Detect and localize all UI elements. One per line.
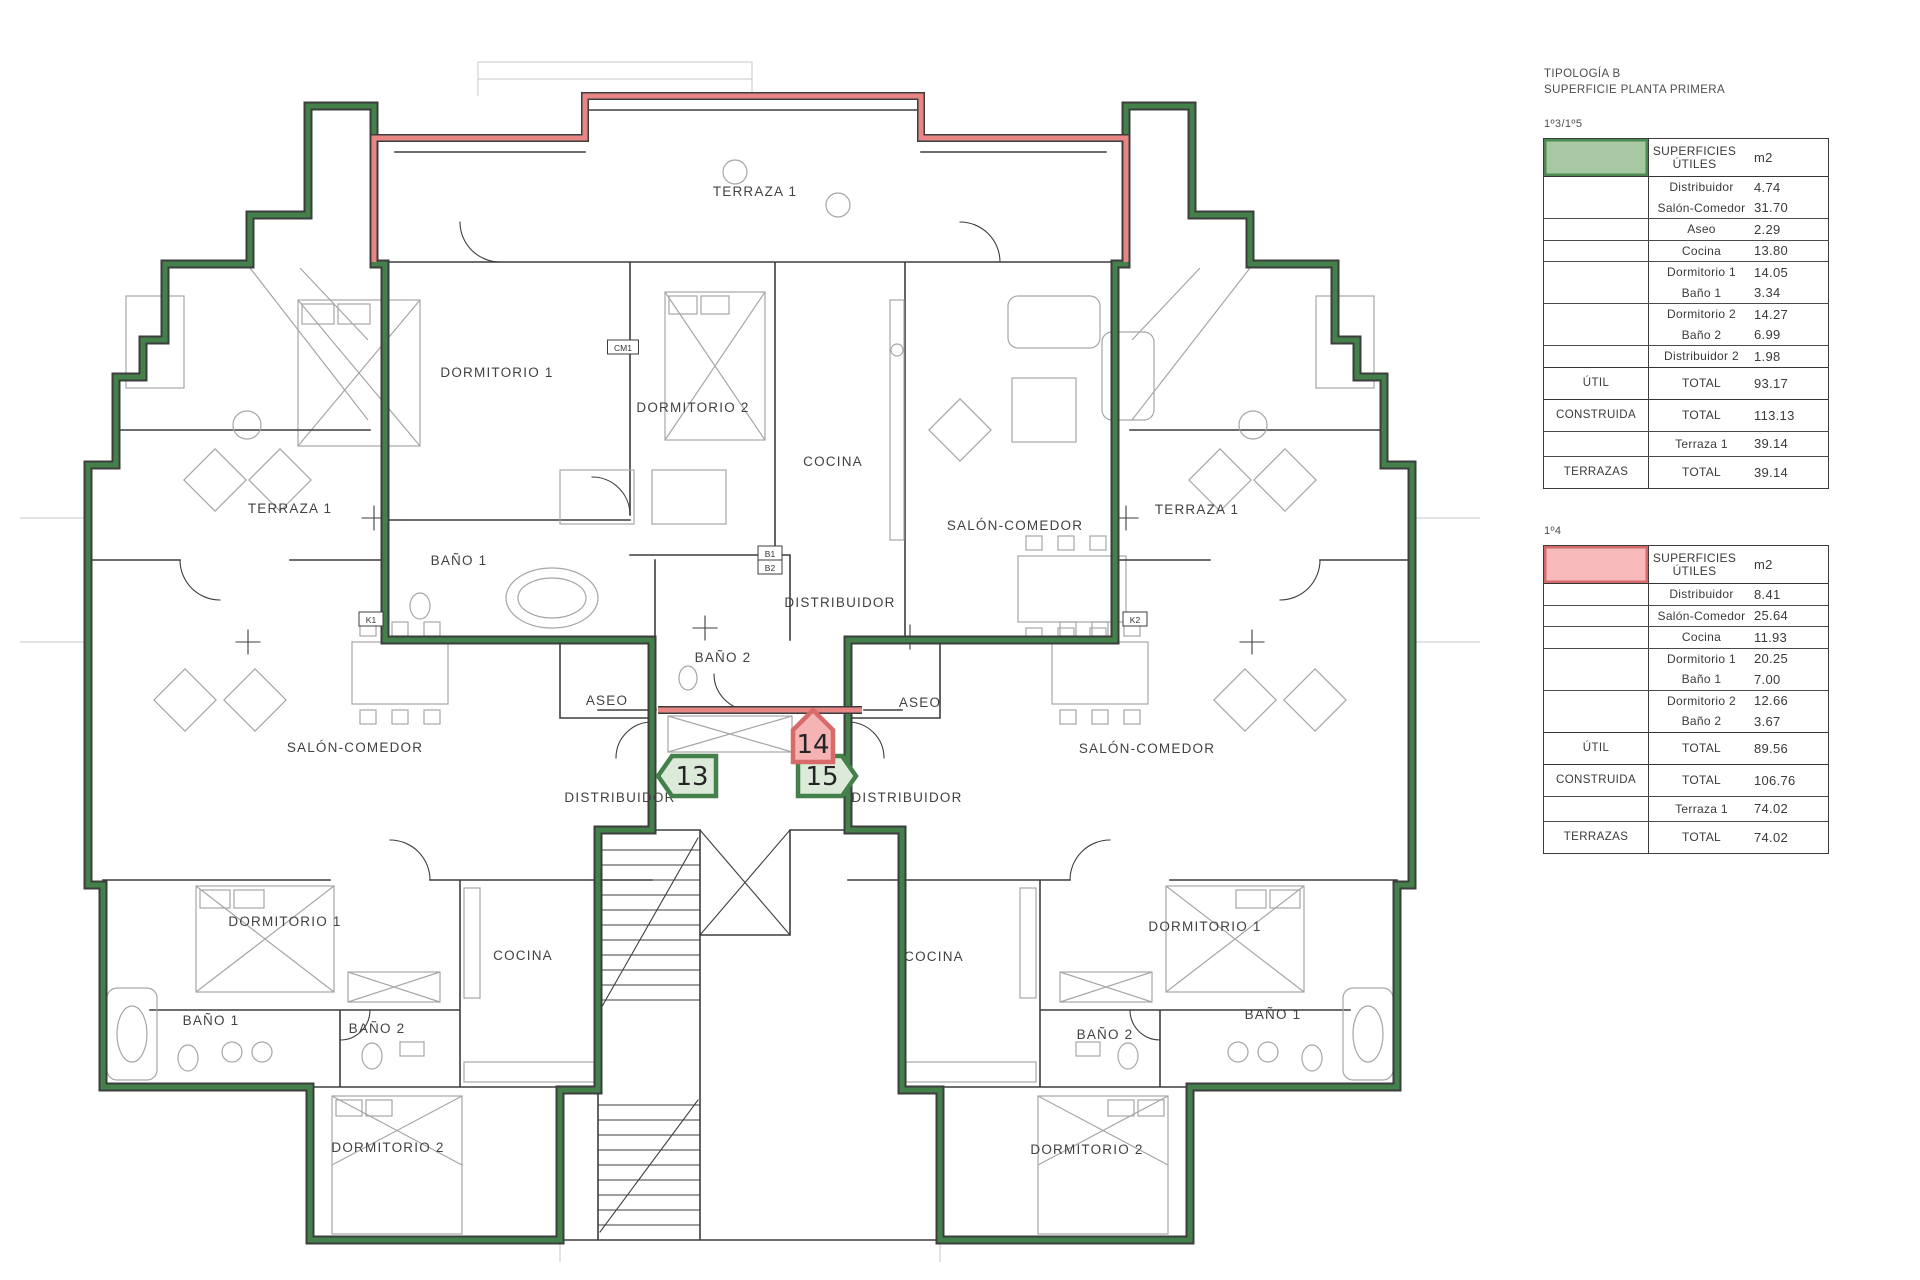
room-area: 12.66 — [1754, 693, 1828, 708]
total-area: 106.76 — [1754, 773, 1828, 788]
unit-badges: 131514 — [658, 710, 856, 796]
table-header-unit: m2 — [1740, 557, 1828, 572]
room-label: TERRAZA 1 — [1155, 502, 1239, 517]
unit-label-14: 1º4 — [1544, 525, 1561, 537]
room-area: 11.93 — [1754, 630, 1828, 645]
row-section — [1544, 219, 1649, 240]
plan-surface-title: SUPERFICIE PLANTA PRIMERA — [1544, 82, 1725, 98]
unit-badge-14: 14 — [793, 710, 833, 762]
room-area: 25.64 — [1754, 608, 1828, 623]
total-section: CONSTRUIDA — [1544, 765, 1649, 796]
room-label: BAÑO 1 — [1245, 1007, 1302, 1022]
equipment-tag-B1: B1 — [758, 546, 782, 560]
room-label: SALÓN-COMEDOR — [947, 518, 1083, 533]
room-area: 31.70 — [1754, 200, 1828, 215]
room-area: 13.80 — [1754, 243, 1828, 258]
row-section — [1544, 649, 1649, 670]
table-total-row: TERRAZASTOTAL74.02 — [1544, 822, 1828, 853]
room-area: 20.25 — [1754, 651, 1828, 666]
header-line: ÚTILES — [1649, 565, 1740, 578]
room-name: Distribuidor 2 — [1649, 349, 1754, 363]
room-name: Dormitorio 2 — [1649, 694, 1754, 708]
table-row: Salón-Comedor25.64 — [1544, 606, 1828, 628]
room-label: DISTRIBUIDOR — [564, 790, 675, 805]
tag-label: CM1 — [614, 343, 632, 353]
tag-label: K1 — [366, 615, 377, 625]
row-section — [1544, 627, 1649, 648]
room-name: Salón-Comedor — [1649, 609, 1754, 623]
row-section — [1544, 304, 1649, 325]
room-label: BAÑO 1 — [183, 1013, 240, 1028]
equipment-tag-CM1: CM1 — [608, 340, 639, 354]
equipment-tag-K1: K1 — [359, 612, 383, 626]
total-name: Terraza 1 — [1649, 802, 1754, 816]
room-label: BAÑO 2 — [1077, 1027, 1134, 1042]
unit-label-13-15: 1º3/1º5 — [1544, 118, 1582, 130]
tag-label: B2 — [765, 563, 776, 573]
row-section — [1544, 691, 1649, 712]
total-name: TOTAL — [1649, 741, 1754, 755]
total-name: TOTAL — [1649, 408, 1754, 422]
surface-table-units-13-15: SUPERFICIESÚTILESm2Distribuidor4.74Salón… — [1543, 138, 1829, 489]
equipment-tags: K1K2CM1B1B2 — [359, 340, 1147, 626]
room-area: 6.99 — [1754, 327, 1828, 342]
table-row: Baño 13.34 — [1544, 283, 1828, 305]
table-row: Dormitorio 120.25 — [1544, 649, 1828, 670]
room-name: Baño 1 — [1649, 672, 1754, 686]
surface-table-unit-14: SUPERFICIESÚTILESm2Distribuidor8.41Salón… — [1543, 545, 1829, 854]
room-name: Salón-Comedor — [1649, 201, 1754, 215]
table-row: Distribuidor8.41 — [1544, 584, 1828, 606]
table-header-title: SUPERFICIESÚTILES — [1649, 552, 1740, 578]
table-row: Distribuidor 21.98 — [1544, 346, 1828, 368]
badge-number: 14 — [796, 730, 829, 760]
room-label: DISTRIBUIDOR — [851, 790, 962, 805]
total-area: 39.14 — [1754, 465, 1828, 480]
room-label: BAÑO 2 — [695, 650, 752, 665]
total-name: TOTAL — [1649, 376, 1754, 390]
row-section — [1544, 325, 1649, 346]
badge-number: 15 — [805, 762, 838, 792]
grid-crosses — [236, 506, 1264, 654]
table-header-title: SUPERFICIESÚTILES — [1649, 145, 1740, 171]
row-section — [1544, 198, 1649, 219]
room-area: 3.34 — [1754, 285, 1828, 300]
room-label: ASEO — [899, 695, 941, 710]
room-label: COCINA — [904, 949, 964, 964]
unit-15-outline — [848, 106, 1412, 1240]
room-name: Distribuidor — [1649, 587, 1754, 601]
row-section — [1544, 669, 1649, 690]
room-area: 1.98 — [1754, 349, 1828, 364]
table-total-row: Terraza 139.14 — [1544, 432, 1828, 457]
header-line: ÚTILES — [1649, 158, 1740, 171]
table-total-row: CONSTRUIDATOTAL113.13 — [1544, 400, 1828, 432]
badge-number: 13 — [675, 762, 708, 792]
table-row: Dormitorio 214.27 — [1544, 304, 1828, 325]
floor-plan-svg: K1K2CM1B1B2 TERRAZA 1DORMITORIO 1DORMITO… — [0, 0, 1500, 1280]
table-row: Cocina11.93 — [1544, 627, 1828, 649]
header-line: SUPERFICIES — [1649, 552, 1740, 565]
table-total-row: CONSTRUIDATOTAL106.76 — [1544, 765, 1828, 797]
room-label: TERRAZA 1 — [713, 184, 797, 199]
table-header-row: SUPERFICIESÚTILESm2 — [1544, 139, 1828, 177]
total-section: ÚTIL — [1544, 733, 1649, 764]
table-row: Baño 17.00 — [1544, 669, 1828, 691]
total-area: 74.02 — [1754, 830, 1828, 845]
total-section: ÚTIL — [1544, 368, 1649, 399]
drawing-title: TIPOLOGÍA B SUPERFICIE PLANTA PRIMERA — [1544, 66, 1725, 98]
floor-plan: K1K2CM1B1B2 TERRAZA 1DORMITORIO 1DORMITO… — [0, 0, 1500, 1280]
room-label: DORMITORIO 2 — [636, 400, 749, 415]
row-section — [1544, 584, 1649, 605]
table-total-row: ÚTILTOTAL93.17 — [1544, 368, 1828, 400]
unit-13-outline — [88, 106, 652, 1240]
room-area: 8.41 — [1754, 587, 1828, 602]
room-name: Baño 1 — [1649, 286, 1754, 300]
total-name: TOTAL — [1649, 830, 1754, 844]
row-section — [1544, 177, 1649, 198]
room-name: Cocina — [1649, 244, 1754, 258]
total-name: TOTAL — [1649, 773, 1754, 787]
room-label: COCINA — [803, 454, 863, 469]
table-row: Baño 23.67 — [1544, 711, 1828, 733]
room-name: Baño 2 — [1649, 714, 1754, 728]
typology-title: TIPOLOGÍA B — [1544, 66, 1725, 82]
table-row: Cocina13.80 — [1544, 241, 1828, 263]
room-label: DORMITORIO 1 — [1148, 919, 1261, 934]
table-header-unit: m2 — [1740, 150, 1828, 165]
room-label: TERRAZA 1 — [248, 501, 332, 516]
total-area: 39.14 — [1754, 436, 1828, 451]
total-section — [1544, 432, 1649, 456]
room-label: DORMITORIO 2 — [331, 1140, 444, 1155]
stairs — [598, 838, 700, 1232]
table-total-row: TERRAZASTOTAL39.14 — [1544, 457, 1828, 488]
header-line: SUPERFICIES — [1649, 145, 1740, 158]
room-area: 3.67 — [1754, 714, 1828, 729]
summary-panel: TIPOLOGÍA B SUPERFICIE PLANTA PRIMERA 1º… — [1543, 0, 1833, 1280]
room-area: 2.29 — [1754, 222, 1828, 237]
room-name: Aseo — [1649, 222, 1754, 236]
room-name: Distribuidor — [1649, 180, 1754, 194]
total-name: Terraza 1 — [1649, 437, 1754, 451]
room-area: 14.05 — [1754, 265, 1828, 280]
room-name: Cocina — [1649, 630, 1754, 644]
total-area: 89.56 — [1754, 741, 1828, 756]
tag-label: K2 — [1130, 615, 1141, 625]
row-section — [1544, 241, 1649, 262]
room-area: 4.74 — [1754, 180, 1828, 195]
table-row: Aseo2.29 — [1544, 219, 1828, 241]
room-name: Dormitorio 2 — [1649, 307, 1754, 321]
total-section: CONSTRUIDA — [1544, 400, 1649, 431]
table-row: Distribuidor4.74 — [1544, 177, 1828, 198]
room-name: Baño 2 — [1649, 328, 1754, 342]
room-label: COCINA — [493, 948, 553, 963]
table-header-row: SUPERFICIESÚTILESm2 — [1544, 546, 1828, 584]
color-swatch — [1544, 139, 1649, 176]
table-row: Salón-Comedor31.70 — [1544, 198, 1828, 220]
row-section — [1544, 606, 1649, 627]
table-total-row: Terraza 174.02 — [1544, 797, 1828, 822]
table-row: Dormitorio 212.66 — [1544, 691, 1828, 712]
room-label: DORMITORIO 1 — [440, 365, 553, 380]
total-name: TOTAL — [1649, 465, 1754, 479]
total-area: 74.02 — [1754, 801, 1828, 816]
total-section — [1544, 797, 1649, 821]
room-label: DISTRIBUIDOR — [784, 595, 895, 610]
room-label: ASEO — [586, 693, 628, 708]
room-label: DORMITORIO 1 — [228, 914, 341, 929]
unit-badge-13: 13 — [658, 756, 716, 796]
room-label: BAÑO 2 — [349, 1021, 406, 1036]
row-section — [1544, 283, 1649, 304]
room-label: BAÑO 1 — [431, 553, 488, 568]
total-area: 93.17 — [1754, 376, 1828, 391]
room-name: Dormitorio 1 — [1649, 652, 1754, 666]
room-area: 14.27 — [1754, 307, 1828, 322]
total-section: TERRAZAS — [1544, 457, 1649, 488]
room-label: DORMITORIO 2 — [1030, 1142, 1143, 1157]
room-area: 7.00 — [1754, 672, 1828, 687]
room-label: SALÓN-COMEDOR — [287, 740, 423, 755]
color-swatch — [1544, 546, 1649, 583]
table-row: Dormitorio 114.05 — [1544, 262, 1828, 283]
table-total-row: ÚTILTOTAL89.56 — [1544, 733, 1828, 765]
walls-layer — [236, 110, 1264, 1240]
row-section — [1544, 711, 1649, 732]
equipment-tag-K2: K2 — [1123, 612, 1147, 626]
row-section — [1544, 262, 1649, 283]
total-area: 113.13 — [1754, 408, 1828, 423]
tag-label: B1 — [765, 549, 776, 559]
total-section: TERRAZAS — [1544, 822, 1649, 853]
room-labels: TERRAZA 1DORMITORIO 1DORMITORIO 2COCINAS… — [183, 184, 1302, 1157]
room-label: SALÓN-COMEDOR — [1079, 741, 1215, 756]
equipment-tag-B2: B2 — [758, 560, 782, 574]
row-section — [1544, 346, 1649, 367]
room-name: Dormitorio 1 — [1649, 265, 1754, 279]
table-row: Baño 26.99 — [1544, 325, 1828, 347]
